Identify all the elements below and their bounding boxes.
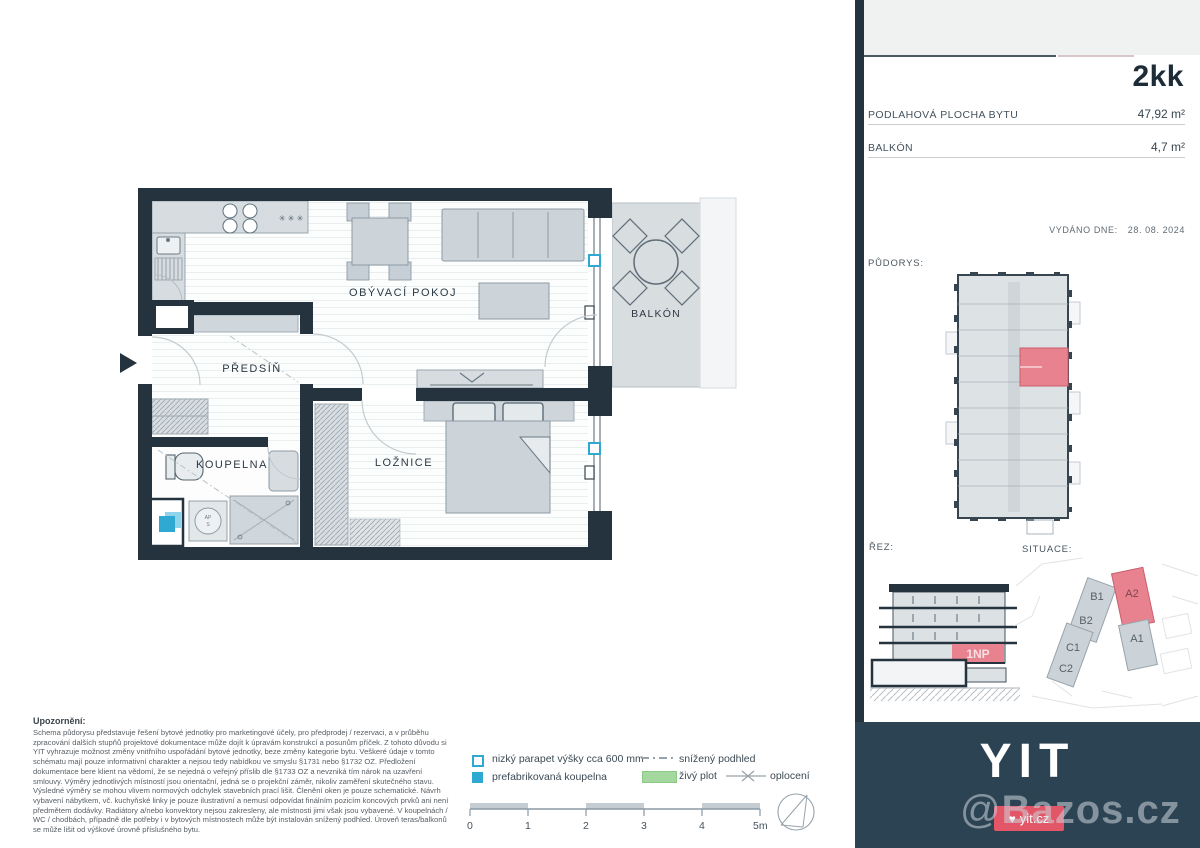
room-label-balcony: BALKÓN [631,307,681,320]
yit-logo: YIT [855,734,1200,789]
legend-fence: oplocení [770,770,810,782]
lowered-ceiling-legend-icon [640,753,676,763]
watermark-symbol: @ [960,788,1002,832]
legend-hedge: živý plot [679,770,717,782]
legend-prefab-bath: prefabrikovaná koupelna [492,771,607,783]
issued-date: 28. 08. 2024 [1128,225,1185,235]
scale-tick-3: 3 [641,820,647,832]
window-handle [585,306,594,319]
prefab-bath-legend-icon [472,772,483,783]
scale-tick-0: 0 [467,820,473,832]
bedroom-wardrobe [315,404,348,545]
bazos-watermark: @Bazos.cz [960,788,1181,833]
scale-tick-1: 1 [525,820,531,832]
site-label-c1: C1 [1066,642,1080,654]
panel-divider [855,0,864,848]
wall-niche [156,306,188,328]
site-label-c2: C2 [1059,663,1073,675]
balcony-area: BALKÓN [612,198,736,388]
tv-sideboard [417,370,543,388]
low-sill-marker [589,443,600,454]
scale-tick-2: 2 [583,820,589,832]
site-plan: B1 B2 A2 A1 C1 C2 [1012,556,1200,716]
bedroom-rug [350,519,400,546]
entry-arrow-icon [120,353,137,373]
compass-icon [773,789,819,835]
bathtub-icon [269,451,298,491]
section-floor-tag: 1NP [966,647,989,661]
panel-rule-dark [864,55,1056,57]
issued-line: VYDÁNO DNE:28. 08. 2024 [868,225,1185,235]
balcony-row: BALKÓN 4,7 m² [868,133,1185,158]
coffee-table [479,283,549,319]
site-label-a2: A2 [1125,588,1138,600]
disclaimer-title: Upozornění: [33,716,449,726]
site-background-lines [1014,558,1198,708]
floorplan-page: BALKÓN ✳ ✳ ✳ [0,0,1200,848]
site-label-b1: B1 [1090,591,1103,603]
area-row: PODLAHOVÁ PLOCHA BYTU 47,92 m² [868,100,1185,125]
window-handle [585,466,594,479]
shower-icon [230,496,298,544]
legend-lowered-ceiling: snížený podhled [679,753,755,765]
area-label: PODLAHOVÁ PLOCHA BYTU [868,109,1018,121]
scale-tick-4: 4 [699,820,705,832]
issued-label: VYDÁNO DNE: [1049,225,1118,235]
panel-rule-accent [1058,55,1134,57]
balcony-label: BALKÓN [868,142,913,154]
situace-label: SITUACE: [1022,544,1072,555]
low-sill-legend-icon [472,755,484,767]
disclaimer-body: Schema půdorysu představuje řešení bytov… [33,728,449,835]
room-label-bedroom: LOŽNICE [375,456,433,469]
rez-label: ŘEZ: [869,542,894,553]
hall-wardrobe [152,399,208,434]
washer-label-1: AP [205,515,212,521]
room-label-bathroom: KOUPELNA [196,459,268,471]
watermark-text: Bazos.cz [1002,788,1181,832]
site-label-a1: A1 [1130,633,1143,645]
sink-icon [157,237,180,254]
legend-low-sill: nizký parapet výšky cca 600 mm [492,753,644,765]
fence-legend-icon [726,770,766,782]
sofa [442,209,584,261]
windows [585,218,612,511]
mini-floorplan [930,272,1100,540]
area-value: 47,92 m² [1138,107,1185,121]
unit-type-heading: 2kk [868,60,1184,94]
panel-top-band [864,0,1200,55]
site-label-b2: B2 [1079,615,1092,627]
fridge-icon: ✳ ✳ ✳ [279,214,304,223]
pudorys-label: PŮDORYS: [868,258,924,269]
washing-machine-icon: AP S [189,501,227,541]
dishwasher-hatch [155,258,182,280]
balcony-value: 4,7 m² [1151,140,1185,154]
hall-closet [190,315,298,332]
low-sill-marker [589,255,600,266]
scale-bar: 0 1 2 3 4 5m [465,795,777,835]
hedge-legend-icon [642,771,677,783]
room-label-living: OBÝVACÍ POKOJ [349,286,457,299]
floor-plan-drawing: BALKÓN ✳ ✳ ✳ [0,0,855,710]
section-drawing: 1NP [865,556,1025,706]
room-label-hall: PŘEDSÍŇ [222,362,281,375]
scale-tick-5: 5m [753,820,768,832]
disclaimer-block: Upozornění: Schema půdorysu představuje … [33,716,449,835]
